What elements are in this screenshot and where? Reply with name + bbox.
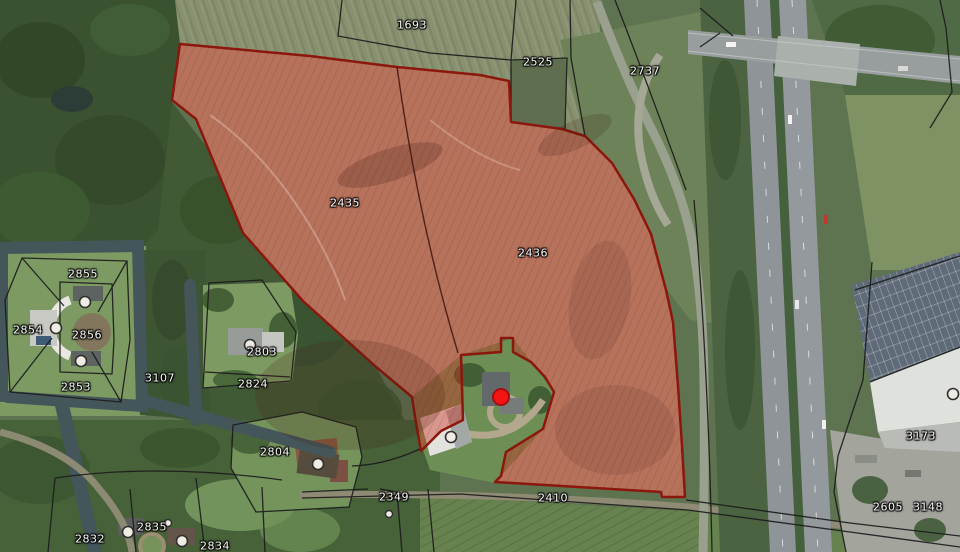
estate-lawn: [0, 246, 146, 416]
small-dot-marker: [165, 520, 172, 527]
garden-circle: [140, 534, 164, 552]
scrub-strip: [511, 58, 567, 129]
vehicle: [726, 42, 736, 47]
tree-clump: [202, 288, 234, 312]
tree-row: [709, 60, 741, 180]
tree-row: [725, 270, 755, 430]
vehicle: [788, 115, 792, 124]
solar-panel-small: [36, 336, 51, 345]
building-marker: [245, 340, 256, 351]
tree-clump: [852, 476, 888, 504]
aerial-map-svg: [0, 0, 960, 552]
canal-2803: [190, 285, 196, 420]
vehicle: [824, 215, 828, 224]
building-marker: [177, 536, 188, 547]
soil-smudge: [555, 385, 675, 475]
building-marker: [446, 432, 457, 443]
building-marker: [80, 297, 91, 308]
yard-clutter: [855, 455, 877, 463]
estate-courtyard: [73, 313, 111, 351]
building-marker: [76, 356, 87, 367]
pond: [51, 86, 93, 112]
location-marker[interactable]: [493, 389, 509, 405]
tree-clump: [140, 428, 220, 468]
small-dot-marker: [386, 511, 393, 518]
lawn-patch: [260, 508, 340, 552]
map-canvas[interactable]: 1693252527372435243628552854285628033107…: [0, 0, 960, 552]
building-marker: [51, 323, 62, 334]
tree-clump: [914, 518, 946, 542]
building-marker: [948, 389, 959, 400]
vehicle: [822, 420, 826, 429]
vehicle: [898, 66, 908, 71]
mansion-2803-wing: [262, 332, 284, 352]
yard-clutter: [905, 470, 921, 477]
vehicle: [795, 300, 799, 309]
building-marker: [313, 459, 324, 470]
tree-clump: [90, 4, 170, 56]
soil-smudge: [255, 340, 445, 450]
building-marker: [123, 527, 134, 538]
